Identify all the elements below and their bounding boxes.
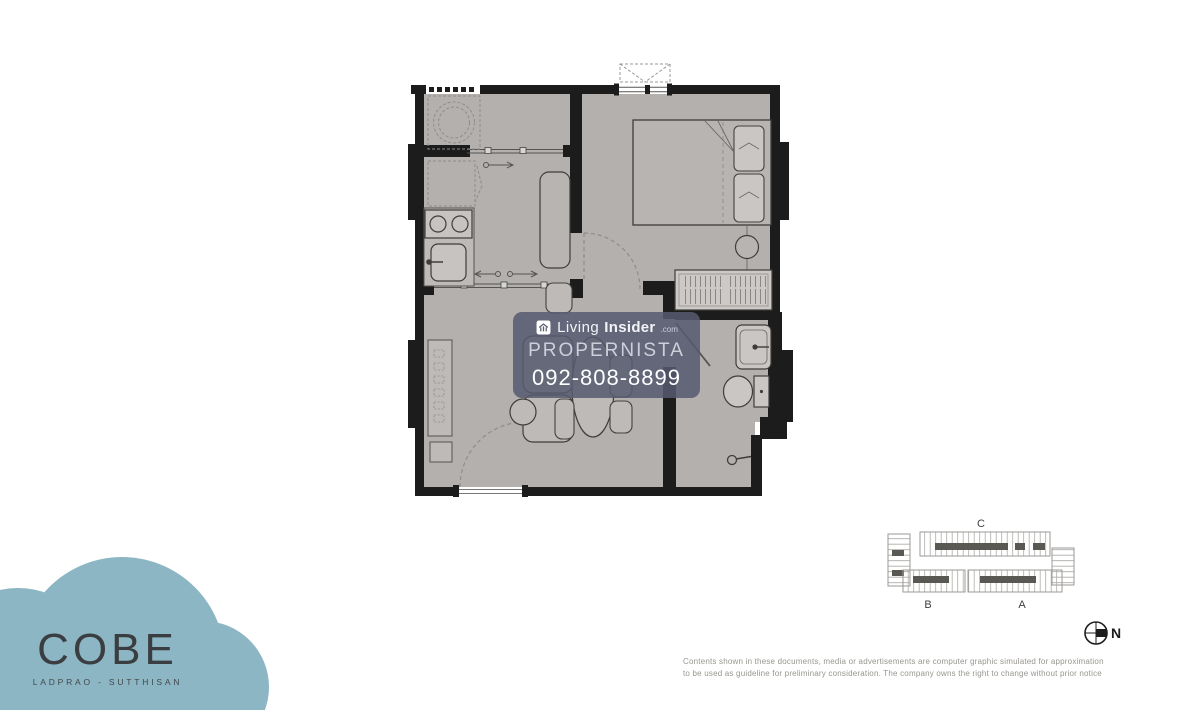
shoe-cabinet: [430, 442, 452, 462]
watermark-panel: LivingInsider.com PROPERNISTA 092-808-88…: [513, 312, 700, 398]
project-logo: COBE LADPRAO - SUTTHISAN: [25, 628, 190, 687]
toilet-bowl: [724, 376, 753, 407]
pillow: [734, 174, 764, 222]
tall-cabinet: [540, 172, 570, 268]
brand-living: Living: [557, 319, 599, 336]
keyplan-label-c: C: [977, 518, 985, 530]
brand-insider: Insider: [604, 319, 655, 336]
keyplan-label-a: A: [1018, 599, 1026, 610]
watermark-brand: LivingInsider.com: [535, 319, 678, 336]
dining-chair: [610, 401, 632, 433]
entrance-opening: [458, 487, 523, 496]
ac-condenser-unit: [620, 64, 670, 82]
disclaimer: Contents shown in these documents, media…: [683, 656, 1128, 679]
compass-north-icon: N: [1082, 618, 1128, 648]
keyplan-label-b: B: [924, 599, 931, 610]
bedroom-window: [618, 85, 668, 94]
disclaimer-line2: to be used as guideline for preliminary …: [683, 668, 1128, 680]
watermark-phone: 092-808-8899: [532, 365, 681, 391]
stove: [425, 210, 472, 238]
project-subtitle: LADPRAO - SUTTHISAN: [25, 677, 190, 687]
brand-tld: .com: [661, 325, 678, 334]
ottoman: [510, 399, 536, 425]
wardrobe-hangers: [684, 276, 724, 304]
disclaimer-line1: Contents shown in these documents, media…: [683, 656, 1128, 668]
compass-label: N: [1111, 625, 1121, 641]
watermark-agency: PROPERNISTA: [528, 340, 685, 362]
building-key-plan: C B A: [878, 514, 1078, 610]
flyer-canvas: LivingInsider.com PROPERNISTA 092-808-88…: [0, 0, 1200, 710]
dining-chair: [555, 399, 574, 439]
wardrobe-hangers: [729, 276, 768, 304]
pillow: [734, 126, 764, 171]
bedside-stool: [736, 236, 759, 259]
dining-chair: [546, 283, 572, 313]
project-name: COBE: [25, 628, 190, 672]
floor-plan: [403, 60, 798, 503]
livinginsider-cube-icon: [535, 319, 552, 336]
